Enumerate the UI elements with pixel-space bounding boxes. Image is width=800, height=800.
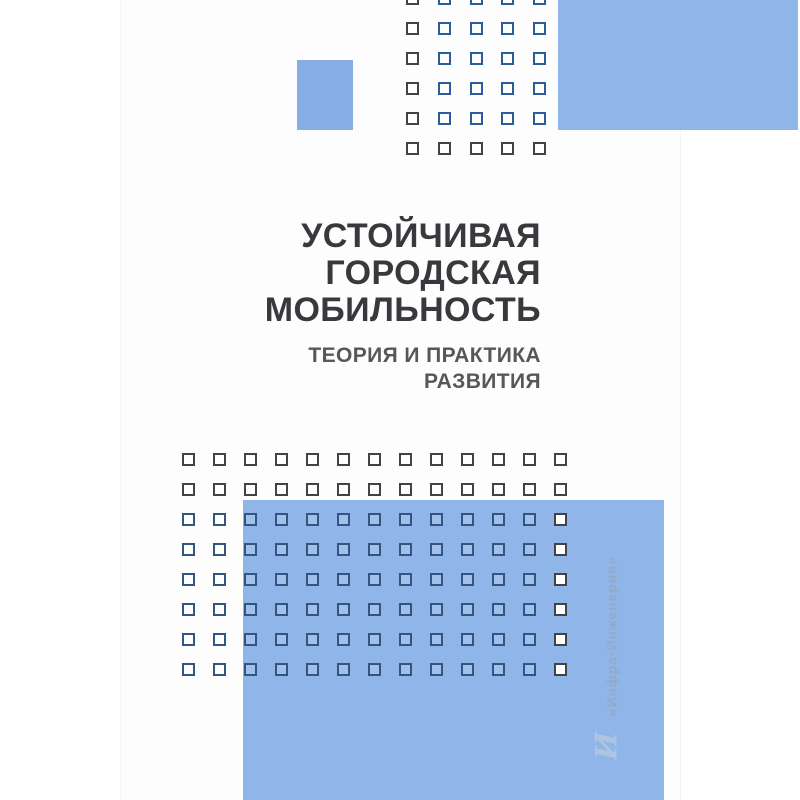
cover-page <box>120 0 681 800</box>
book-subtitle-line-1: ТЕОРИЯ И ПРАКТИКА <box>308 343 541 369</box>
book-subtitle: ТЕОРИЯ И ПРАКТИКА РАЗВИТИЯ <box>308 343 541 395</box>
book-title: УСТОЙЧИВАЯ ГОРОДСКАЯ МОБИЛЬНОСТЬ <box>265 218 541 329</box>
decor-top-blue-panel <box>558 0 798 130</box>
publisher-logo-icon: И <box>590 732 625 760</box>
book-cover: УСТОЙЧИВАЯ ГОРОДСКАЯ МОБИЛЬНОСТЬ ТЕОРИЯ … <box>0 0 800 800</box>
book-title-line-2: ГОРОДСКАЯ <box>265 255 541 292</box>
decor-small-blue-rectangle <box>297 60 353 130</box>
book-title-line-3: МОБИЛЬНОСТЬ <box>265 292 541 329</box>
publisher-name: «Инфра-Инженерия» <box>605 556 620 716</box>
book-subtitle-line-2: РАЗВИТИЯ <box>308 369 541 395</box>
book-title-line-1: УСТОЙЧИВАЯ <box>265 218 541 255</box>
